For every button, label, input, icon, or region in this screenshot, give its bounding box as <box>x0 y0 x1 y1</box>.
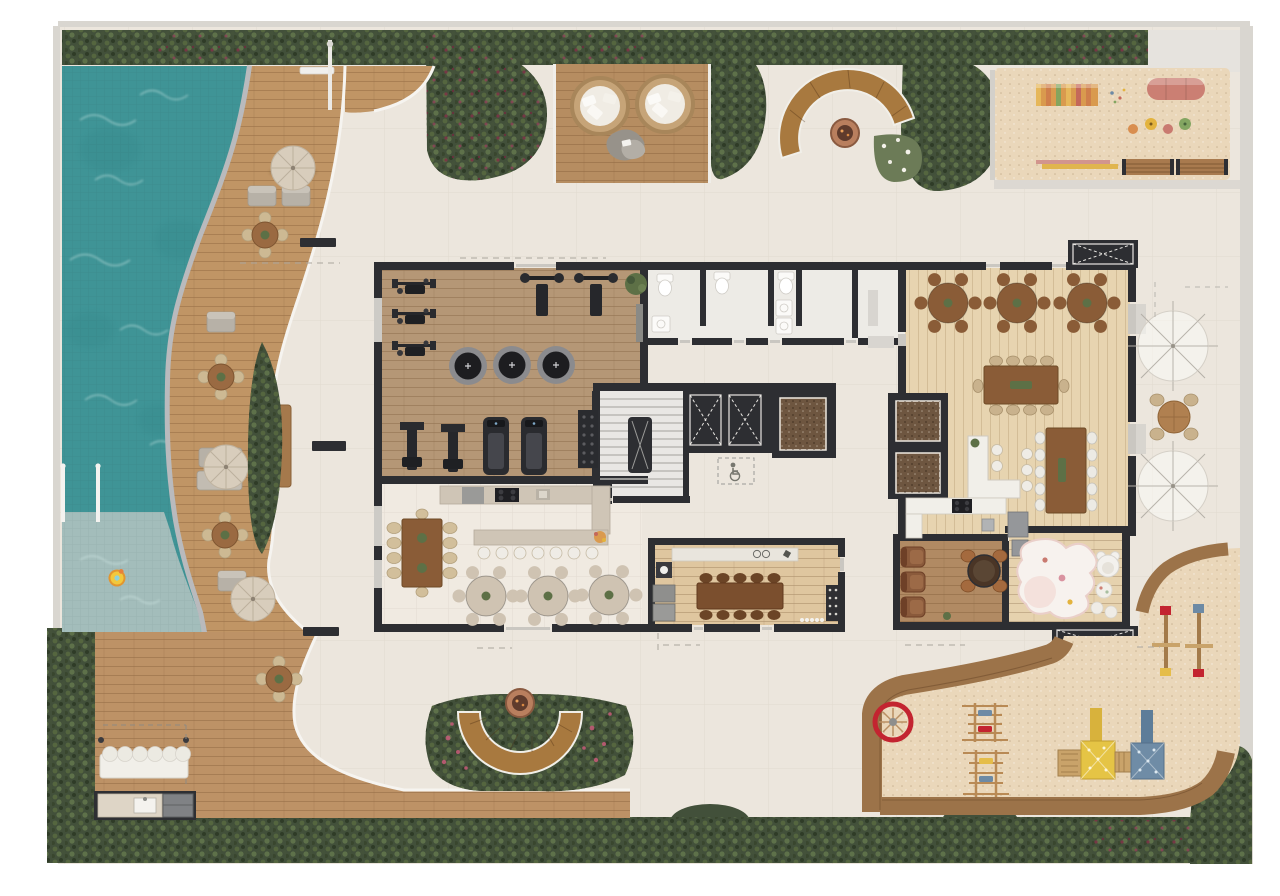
fire-bowl-south <box>506 689 534 717</box>
toilet-1 <box>657 274 673 296</box>
site-boundary-top <box>58 21 1250 27</box>
toilet-2 <box>714 272 730 294</box>
card-table <box>961 550 1007 592</box>
storage-shelf <box>868 290 878 326</box>
floor-plan-stage <box>0 0 1280 896</box>
merry-go-round <box>875 704 911 740</box>
wall-rack <box>636 304 643 342</box>
fire-pit-south <box>426 689 634 791</box>
breezeway-bench <box>868 336 894 348</box>
site-boundary-left <box>53 26 60 636</box>
wine-counter <box>672 548 798 561</box>
mini-trampoline-3 <box>537 346 575 384</box>
site-boundary-right <box>1240 26 1253 864</box>
service-elevators <box>888 393 948 499</box>
play-rug <box>1017 539 1096 618</box>
wine-rack <box>826 585 840 621</box>
pool-umbrella-3 <box>231 577 275 621</box>
dumbbell-rack <box>578 410 598 468</box>
terrace-umbrella-1 <box>1128 301 1218 391</box>
lounge-deck <box>553 64 711 183</box>
toilet-3 <box>778 272 794 294</box>
nest-chair-1 <box>572 78 628 134</box>
playground-bench-1 <box>1122 159 1174 175</box>
playground-path <box>994 180 1240 189</box>
mini-trampoline-2 <box>493 346 531 384</box>
lounge-armchair-1 <box>901 547 925 567</box>
kids-side-table <box>1096 582 1112 598</box>
roof-vent-north <box>1068 240 1138 268</box>
playground-bench-2 <box>1176 159 1228 175</box>
treadmill-2 <box>521 417 547 475</box>
service-strip-ne <box>1148 30 1240 72</box>
striped-climbing-block <box>1036 84 1098 106</box>
wine-table <box>697 573 783 620</box>
lounge-armchair-3 <box>901 597 925 617</box>
teddy-bear-chair <box>1097 552 1120 577</box>
sun-lounger <box>207 312 235 332</box>
crawl-tunnel <box>1147 78 1205 100</box>
balance-beam <box>1036 160 1118 169</box>
nest-chair-2 <box>637 76 693 132</box>
fire-bowl-north <box>831 119 859 147</box>
freight-elevator <box>772 391 836 458</box>
playground-north <box>990 68 1240 189</box>
treadmill-1 <box>483 417 509 475</box>
terrace-umbrella-2 <box>1128 441 1218 531</box>
barbecue-counter <box>94 791 196 820</box>
pool-umbrella-1 <box>271 146 315 190</box>
gym-plant <box>625 273 647 295</box>
cushion-bench <box>100 747 191 779</box>
mini-trampoline-1 <box>449 347 487 385</box>
lounge-armchair-2 <box>901 572 925 592</box>
pool-umbrella-2 <box>204 445 248 489</box>
